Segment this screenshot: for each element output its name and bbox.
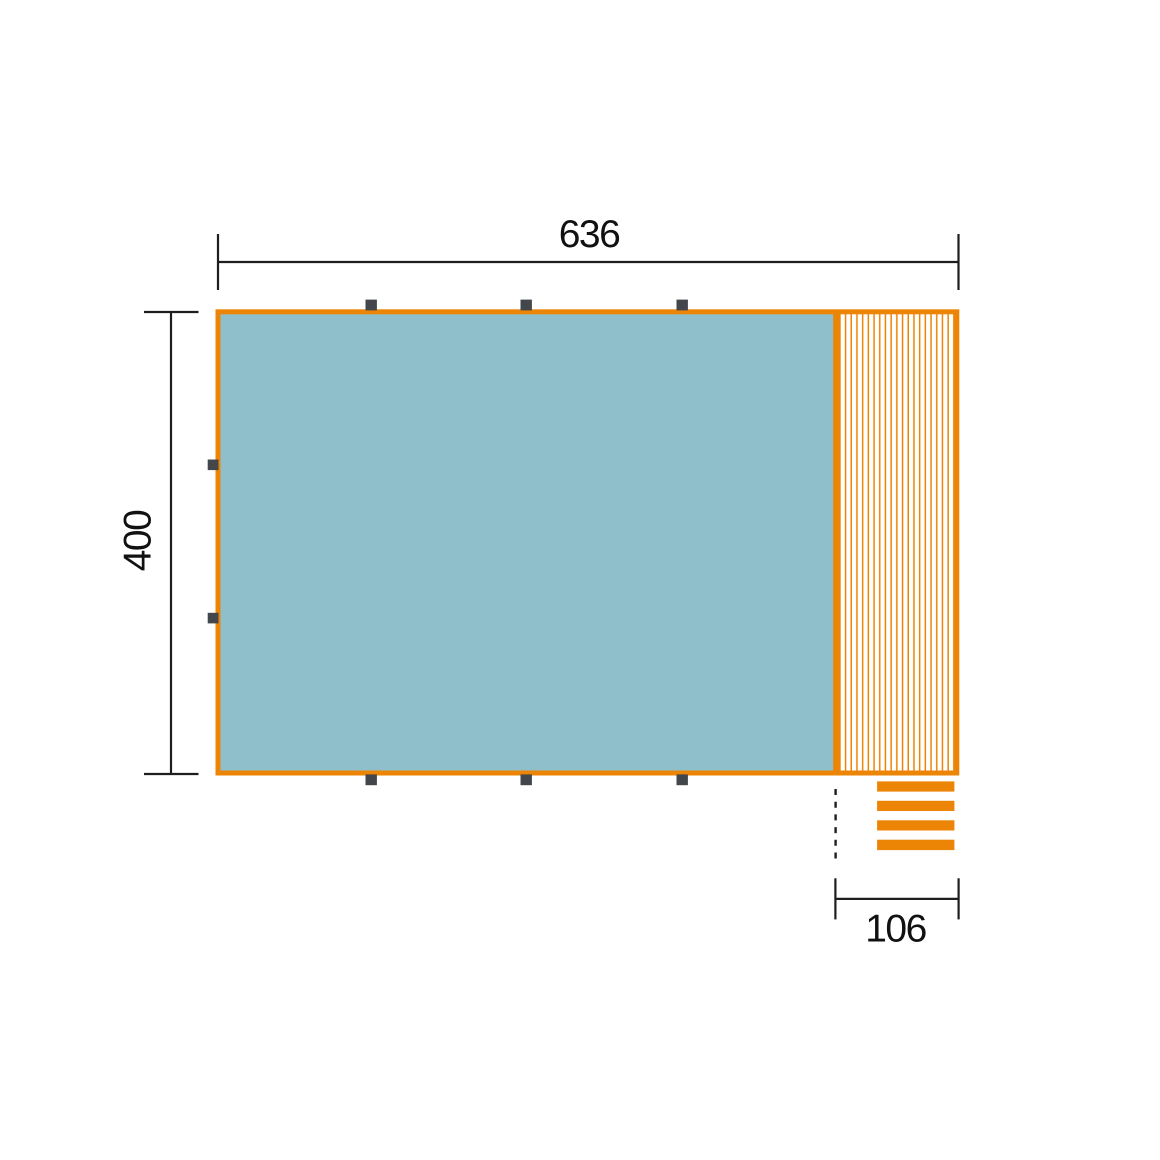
svg-text:636: 636 [559,213,620,256]
svg-text:400: 400 [117,510,160,571]
svg-text:106: 106 [865,908,926,951]
